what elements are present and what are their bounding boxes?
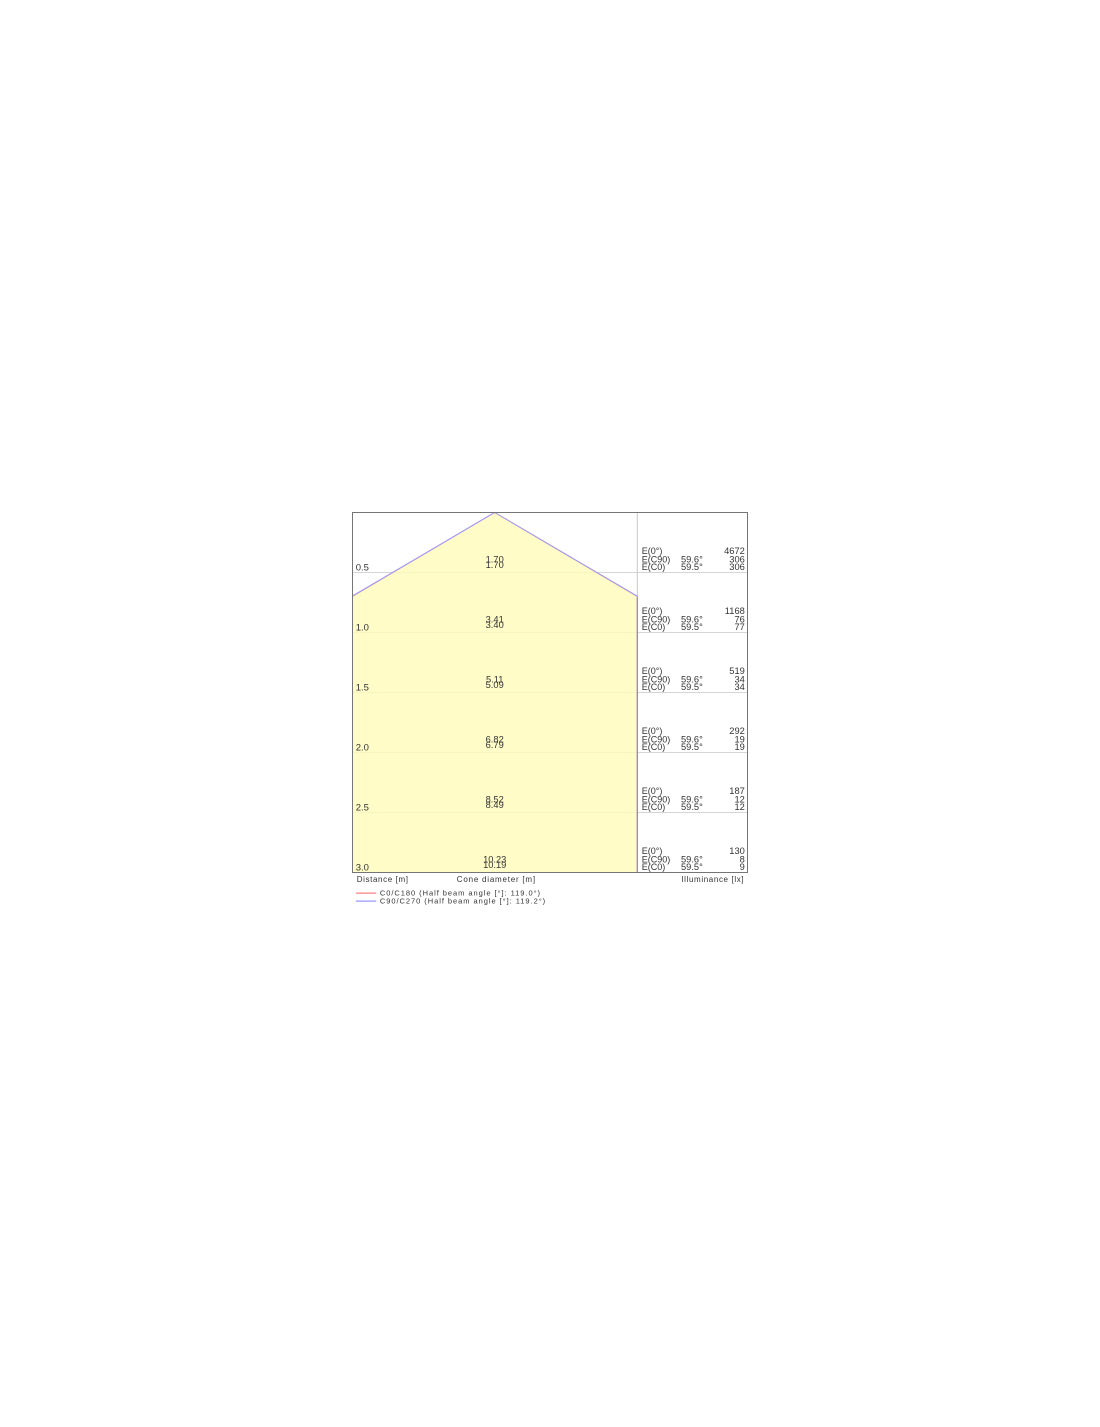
svg-text:1.70: 1.70 — [486, 560, 504, 570]
svg-text:59.5°: 59.5° — [681, 862, 703, 872]
svg-text:34: 34 — [734, 682, 744, 692]
svg-text:Illuminance [lx]: Illuminance [lx] — [681, 875, 744, 884]
svg-text:8.49: 8.49 — [486, 800, 504, 810]
svg-text:Cone diameter [m]: Cone diameter [m] — [457, 875, 536, 884]
svg-text:77: 77 — [734, 622, 744, 632]
svg-text:9: 9 — [740, 862, 745, 872]
svg-text:306: 306 — [729, 562, 745, 572]
svg-text:59.5°: 59.5° — [681, 802, 703, 812]
svg-text:10.19: 10.19 — [483, 860, 506, 870]
svg-text:19: 19 — [734, 742, 744, 752]
svg-text:E(C0): E(C0) — [642, 682, 666, 692]
svg-text:E(C0): E(C0) — [642, 742, 666, 752]
svg-text:2.0: 2.0 — [356, 743, 369, 754]
svg-text:5.09: 5.09 — [486, 680, 504, 690]
svg-text:E(C0): E(C0) — [642, 622, 666, 632]
svg-text:E(C0): E(C0) — [642, 802, 666, 812]
svg-text:C90/C270 (Half beam angle [°]:: C90/C270 (Half beam angle [°]: 119.2°) — [380, 897, 546, 906]
svg-text:1.0: 1.0 — [356, 623, 369, 634]
svg-text:E(C0): E(C0) — [642, 862, 666, 872]
svg-text:3.40: 3.40 — [486, 620, 504, 630]
svg-text:3.0: 3.0 — [356, 863, 369, 874]
svg-text:12: 12 — [734, 802, 744, 812]
svg-text:59.5°: 59.5° — [681, 622, 703, 632]
svg-text:1.5: 1.5 — [356, 683, 369, 694]
svg-text:2.5: 2.5 — [356, 803, 369, 814]
svg-text:0.5: 0.5 — [356, 563, 369, 574]
svg-text:59.5°: 59.5° — [681, 682, 703, 692]
svg-text:59.5°: 59.5° — [681, 562, 703, 572]
svg-text:6.79: 6.79 — [486, 740, 504, 750]
svg-text:Distance [m]: Distance [m] — [357, 875, 409, 884]
svg-text:59.5°: 59.5° — [681, 742, 703, 752]
svg-text:E(C0): E(C0) — [642, 562, 666, 572]
